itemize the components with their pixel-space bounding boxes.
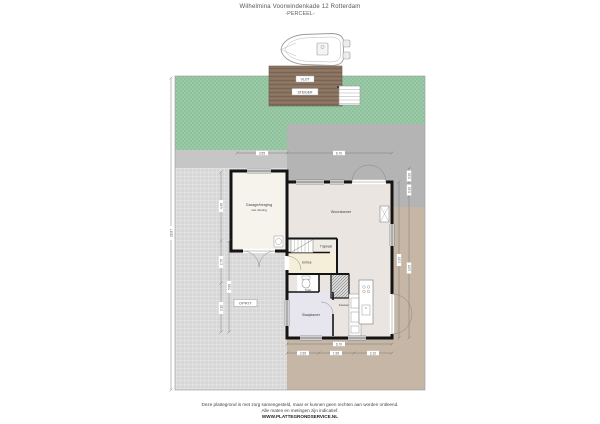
dim-bottom-total: 6.70	[333, 342, 345, 347]
svg-text:OPRIT: OPRIT	[239, 302, 252, 306]
label-kitchen: Keuken	[339, 303, 350, 307]
deck-stairs	[337, 86, 360, 105]
dim-right-2: 0.90	[407, 185, 412, 196]
floorplan-svg: VLOT STEIGER Garage/berging met v	[0, 0, 600, 424]
label-stairs: Trapkast	[320, 245, 332, 249]
label-garage: Garage/berging	[246, 203, 272, 207]
main-house: Woonkamer Trapkast Entree Toilet Slaapka…	[285, 165, 412, 340]
svg-text:6.70: 6.70	[336, 342, 342, 346]
dim-left-3: 3.10	[219, 302, 224, 314]
boat-console	[317, 43, 328, 55]
svg-text:3.10: 3.10	[219, 305, 223, 311]
dim-bottom-2: 1.95	[330, 351, 342, 356]
boat-engine-1	[343, 40, 350, 47]
svg-text:2.65: 2.65	[300, 351, 306, 355]
dim-bottom-3: 2.10	[367, 351, 379, 356]
svg-text:9.05: 9.05	[407, 265, 411, 271]
svg-text:0.90: 0.90	[407, 187, 411, 193]
stairs-icon	[291, 240, 313, 253]
dim-bottom-1: 2.65	[297, 351, 309, 356]
dim-top-right: 6.70	[333, 151, 345, 156]
label-bedroom: Slaapkamer	[302, 313, 321, 317]
svg-text:5.80: 5.80	[227, 284, 231, 290]
svg-text:2.70: 2.70	[219, 259, 223, 265]
dim-left-total: 28.87	[169, 226, 174, 240]
label-toilet: Toilet	[305, 288, 312, 292]
hall-floor	[289, 253, 337, 274]
dim-left-inner: 5.80	[227, 281, 232, 293]
driveway-label: OPRIT	[234, 300, 257, 307]
svg-text:2.10: 2.10	[370, 351, 376, 355]
svg-text:STEIGER: STEIGER	[298, 90, 313, 94]
svg-text:9.95: 9.95	[397, 257, 401, 263]
boat-engine-2	[343, 52, 350, 59]
kitchen-island	[359, 280, 373, 324]
deck-label-top: VLOT	[296, 76, 314, 82]
fridge-icon	[351, 312, 359, 322]
cabinet-icon	[351, 326, 359, 333]
dim-top-left: 3.55	[256, 151, 268, 156]
svg-text:28.87: 28.87	[169, 229, 173, 237]
boat	[281, 34, 350, 66]
svg-text:6.70: 6.70	[336, 151, 342, 155]
boiler-icon	[274, 236, 283, 247]
label-hall: Entree	[302, 261, 312, 265]
wc-icon	[302, 276, 310, 288]
svg-text:0.90: 0.90	[407, 173, 411, 179]
svg-text:VLOT: VLOT	[301, 77, 310, 81]
floorplan-page: Wilhelmina Voorwindenkade 12 Rotterdam -…	[0, 0, 600, 424]
garage-room: Garage/berging met vliering	[231, 169, 287, 267]
dim-right-3: 9.05	[407, 263, 412, 274]
dim-right-total: 9.95	[397, 254, 402, 266]
label-living: Woonkamer	[331, 210, 352, 214]
svg-text:1.95: 1.95	[333, 351, 339, 355]
footer-website: WWW.PLATTEGRONDSERVICE.NL	[0, 414, 600, 420]
svg-text:4.40: 4.40	[219, 203, 223, 209]
dim-left-2: 2.70	[219, 256, 224, 268]
dim-left-1: 4.40	[219, 200, 224, 212]
page-footer: Deze plattegrond is met zorg samengestel…	[0, 402, 600, 420]
svg-text:3.55: 3.55	[259, 151, 265, 155]
wooden-deck	[269, 66, 342, 106]
deck-label-bottom: STEIGER	[292, 89, 318, 96]
oven-icon	[351, 298, 359, 308]
dim-right-1: 0.90	[407, 171, 412, 182]
label-garage-sub: met vliering	[251, 208, 267, 212]
radiator-icon	[380, 206, 389, 222]
